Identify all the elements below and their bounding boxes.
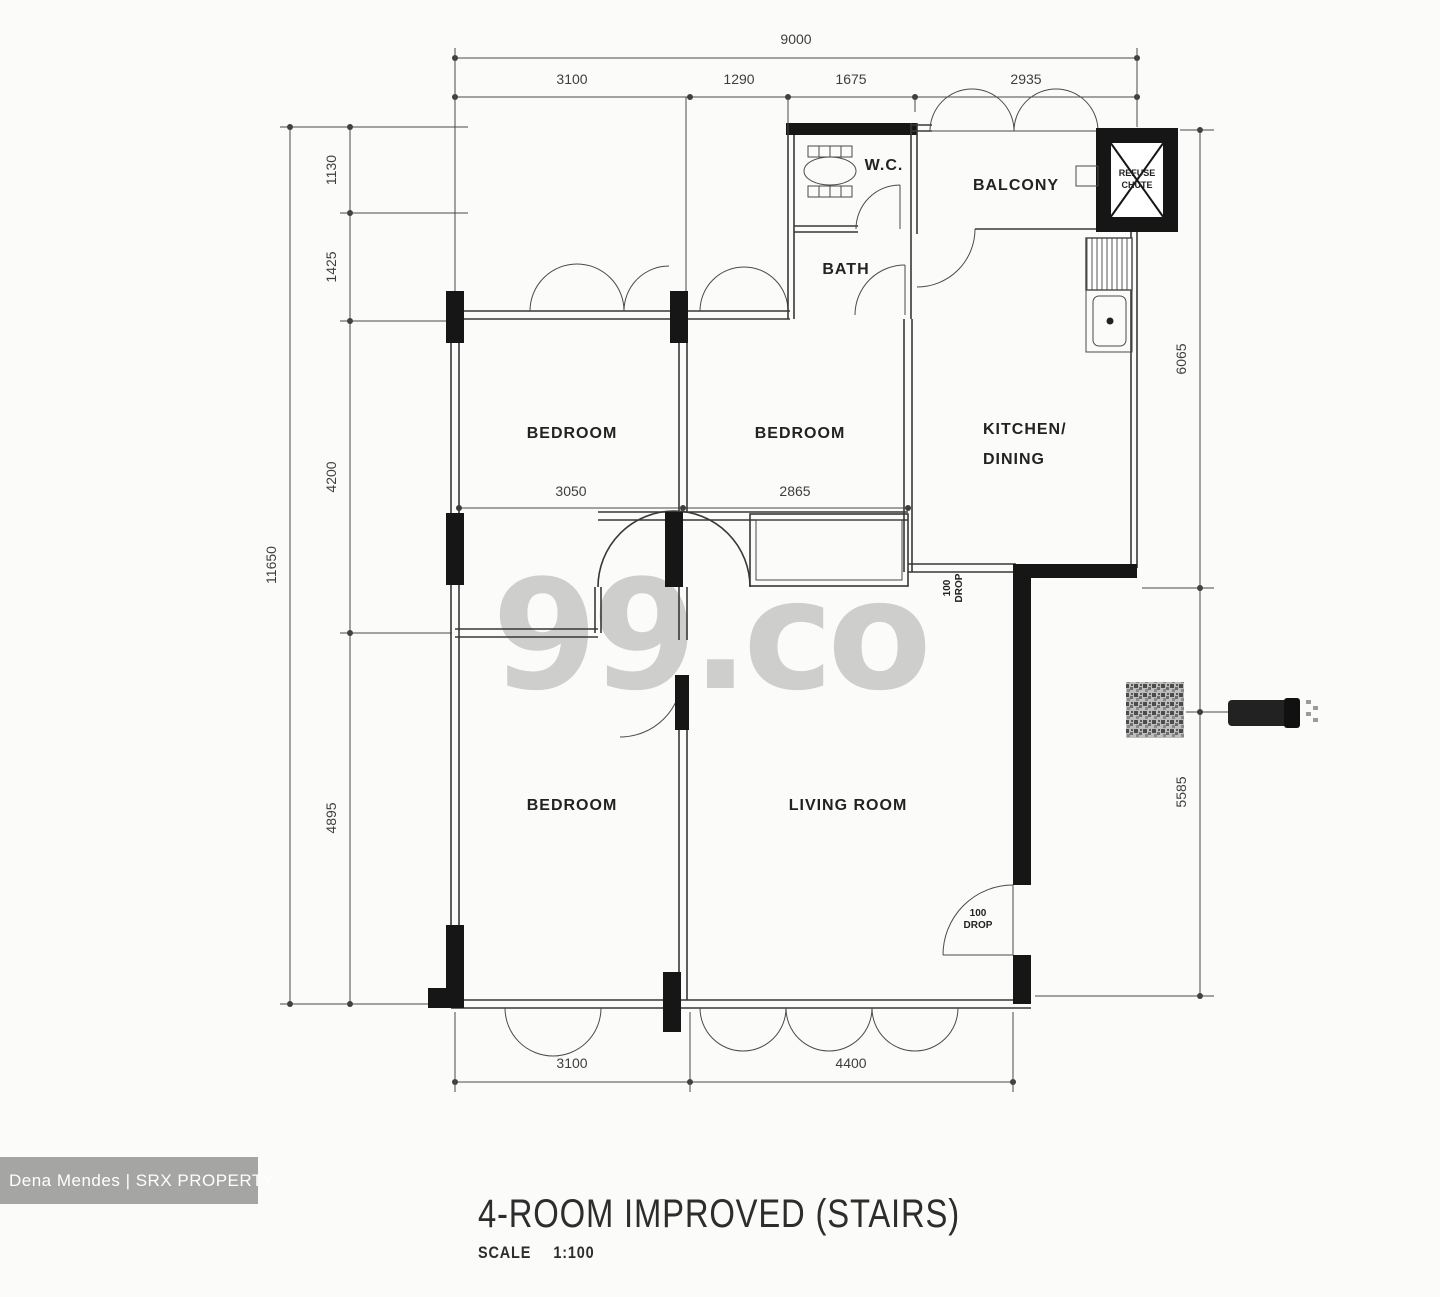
svg-text:100: 100 (970, 908, 987, 919)
dim-left-total: 11650 (263, 546, 279, 584)
kitchen-sink (1086, 238, 1132, 352)
kitchen-drop-annotation: 100 DROP (942, 573, 965, 602)
svg-text:100: 100 (942, 579, 953, 596)
dim-left-seg-4: 4895 (323, 802, 339, 833)
dim-bedroom2-width: 2865 (779, 483, 810, 499)
label-living-room: LIVING ROOM (789, 797, 908, 814)
dim-top-seg-1: 3100 (556, 71, 587, 87)
title-block: 4-ROOM IMPROVED (STAIRS) SCALE 1:100 (478, 1192, 1066, 1263)
dim-left-seg-3: 4200 (323, 461, 339, 492)
label-kitchen-line1: KITCHEN/ (983, 421, 1067, 438)
dim-bottom-seg-1: 3100 (556, 1055, 587, 1071)
walls (428, 89, 1137, 1056)
dim-left-seg-1: 1130 (323, 155, 339, 185)
dim-right-seg-2: 5585 (1173, 776, 1189, 807)
dim-bottom-seg-2: 4400 (835, 1055, 866, 1071)
refuse-chute-label-2: CHUTE (1122, 180, 1153, 190)
dim-right-seg-1: 6065 (1173, 343, 1189, 374)
plan-scale: SCALE 1:100 (478, 1243, 978, 1263)
dim-top-seg-3: 1675 (835, 71, 866, 87)
label-bedroom-3: BEDROOM (527, 797, 618, 814)
floorplan-drawing: 9000 3100 1290 1675 2935 11650 1130 1425… (0, 0, 1440, 1297)
label-bedroom-2: BEDROOM (755, 425, 846, 442)
dim-top-seg-4: 2935 (1010, 71, 1041, 87)
plan-scale-label: SCALE (478, 1243, 531, 1263)
label-wc: W.C. (865, 157, 904, 174)
balcony-door-symbol (1076, 166, 1098, 186)
label-balcony: BALCONY (973, 177, 1059, 194)
label-kitchen-line2: DINING (983, 451, 1045, 468)
refuse-chute-label-1: REFUSE (1119, 168, 1156, 178)
label-bedroom-1: BEDROOM (527, 425, 618, 442)
fine-print-marks (1306, 700, 1318, 722)
svg-text:DROP: DROP (964, 920, 993, 931)
floorplan-canvas: 99.co (0, 0, 1440, 1297)
wc-fixture (804, 146, 856, 197)
plan-title: 4-ROOM IMPROVED (STAIRS) (478, 1192, 960, 1237)
dim-left-seg-2: 1425 (323, 251, 339, 282)
agent-badge: Dena Mendes | SRX PROPERTY (0, 1157, 258, 1204)
dim-top-seg-2: 1290 (723, 71, 754, 87)
dim-bedroom1-width: 3050 (555, 483, 586, 499)
dim-top-total: 9000 (780, 31, 811, 47)
refuse-chute: REFUSE CHUTE (1096, 128, 1178, 232)
label-bath: BATH (822, 261, 869, 278)
agent-badge-text: Dena Mendes | SRX PROPERTY (9, 1171, 275, 1191)
svg-text:DROP: DROP (954, 573, 965, 602)
living-drop-annotation: 100 DROP (964, 908, 993, 931)
qr-stamp (1126, 682, 1318, 738)
plan-scale-value: 1:100 (553, 1243, 594, 1263)
